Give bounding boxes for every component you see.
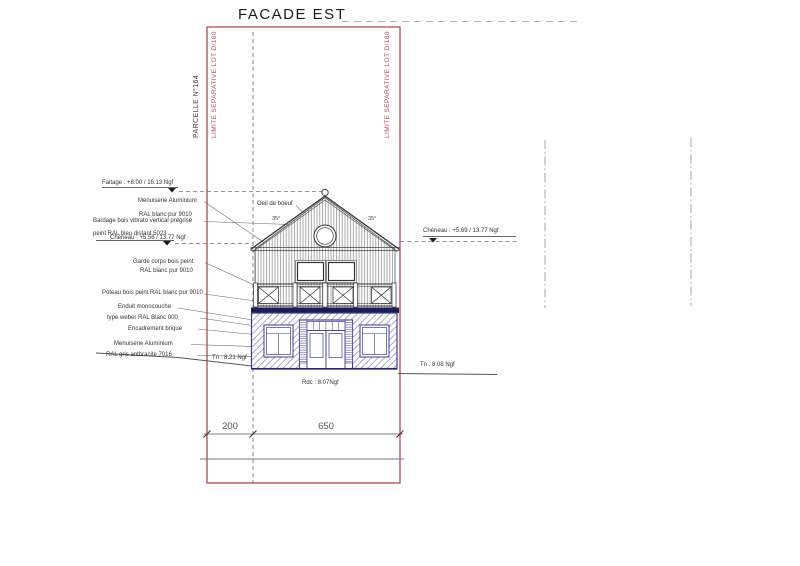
ground-window-right: [360, 325, 389, 357]
faitage-level-label: Faitage : +8.00 / 16.13 Ngf: [102, 180, 173, 187]
drawing-title: FACADE EST: [238, 6, 346, 23]
callout-garde-corps: Garde corps bois peint: [133, 259, 193, 266]
parcelle-boundary-label: PARCELLE N°164: [193, 75, 200, 138]
cheneau-right-level-marker: [401, 237, 520, 243]
callout-weber: type weber RAL Blanc 000: [107, 315, 178, 322]
limite-separative-right-label: LIMITE SEPARATIVE LOT D/180: [384, 31, 391, 138]
tn-left-level-label: Tn : 8.21 Ngf: [212, 355, 247, 362]
rdc-level-label: Rdc : 8.07Ngf: [302, 380, 339, 387]
ground-floor: [251, 313, 397, 369]
tn-right-level-label: Tn : 8.08 Ngf: [420, 362, 455, 369]
brick-surround-left: [300, 320, 308, 363]
cheneau-right-level-label: Chéneau : +5.69 / 13.77 Ngf: [423, 228, 499, 235]
cheneau-left-level-label: Chéneau : +5.56 / 13.77 Ngf: [110, 235, 186, 242]
ridge-finial: [322, 189, 328, 195]
callout-menuiserie-ground: Menuiserie Aluminium: [114, 341, 173, 348]
callout-menuiserie-upper: Menuiserie Aluminium: [138, 198, 197, 205]
ground-french-door: [300, 320, 353, 369]
limite-separative-left-label: LIMITE SEPARATIVE LOT D/180: [211, 31, 218, 138]
callout-poteau: Poteau bois peint RAL blanc pur 9010: [102, 290, 203, 297]
balcony-slab: [251, 308, 399, 314]
balcony-balustrade: [254, 283, 397, 307]
ground-window-left: [264, 325, 293, 357]
callout-ral-blanc-balcony: RAL blanc pur 9010: [140, 268, 193, 275]
dimension-650-label: 650: [309, 421, 343, 432]
brick-surround-right: [345, 320, 353, 363]
roof-pitch-right-label: 35°: [368, 216, 376, 222]
oeil-de-boeuf-label: Oeil de boeuf: [257, 201, 293, 208]
elevation-drawing-sheet: FACADE EST PARCELLE N°164 LIMITE SEPARAT…: [0, 0, 800, 566]
callout-ral-anthracite: RAL gris anthracite 7016: [106, 352, 172, 359]
callout-bardage: Bardage bois vibrato vertical prégrisé: [93, 218, 192, 225]
terrain-line-right: [398, 374, 497, 375]
callout-encadrement: Encadrement brique: [128, 326, 182, 333]
oeil-de-boeuf-window: [314, 225, 336, 247]
dimension-200-label: 200: [213, 421, 247, 432]
drawing-linework: [0, 0, 800, 566]
callout-enduit: Enduit monocouche: [118, 304, 171, 311]
roof-pitch-left-label: 35°: [272, 216, 280, 222]
faitage-level-marker: [102, 188, 323, 193]
